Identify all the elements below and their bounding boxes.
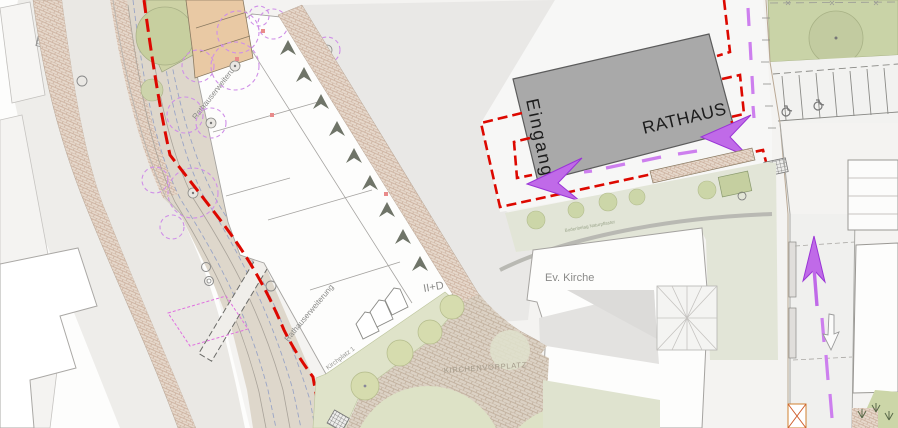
svg-text:Ev. Kirche: Ev. Kirche (545, 272, 594, 284)
